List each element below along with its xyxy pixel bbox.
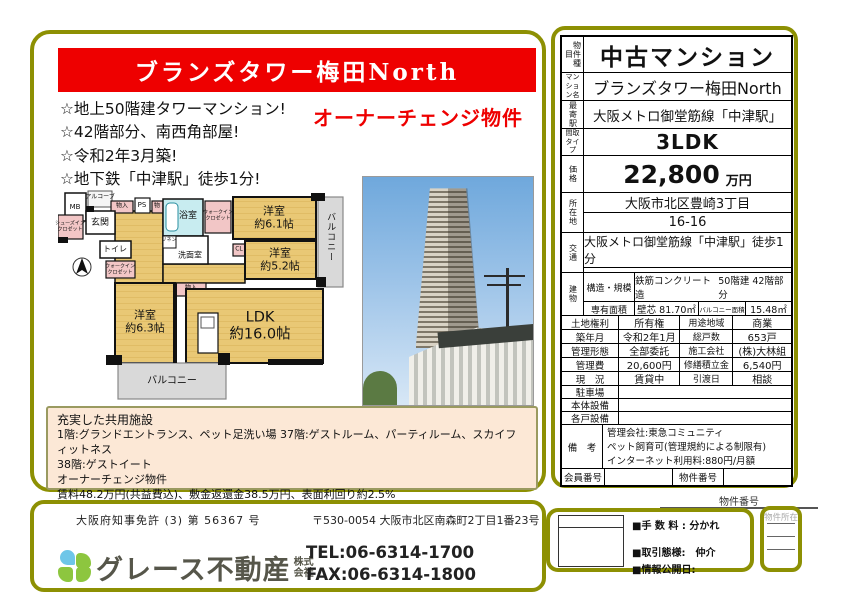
- facilities-line: 38階:ゲストイート: [57, 458, 527, 473]
- property-location-label: 物件所在: [764, 510, 798, 523]
- spec-row-station: 最寄駅 大阪メトロ御堂筋線「中津駅」: [562, 100, 791, 128]
- spec-table: 物件種目 中古マンション マンション名 ブランズタワー梅田North 最寄駅 大…: [560, 35, 793, 487]
- fp-label-bath: 浴室: [179, 211, 197, 221]
- highlight-item: ☆42階部分、南西角部屋!: [60, 121, 286, 144]
- license-number: 大阪府知事免許 (3) 第 56367 号: [76, 512, 261, 528]
- note-line: 管理会社:東急コミュニティ: [607, 427, 787, 441]
- spec-row-address: 所在地 大阪市北区豊崎3丁目 16-16: [562, 192, 791, 232]
- note-line: ペット飼育可(管理規約による制限有): [607, 441, 787, 455]
- spec-row-price: 価格 22,800 万円: [562, 155, 791, 192]
- fp-label-alcove: アルコーブ: [85, 195, 114, 202]
- fp-label-bedroom3: 洋室 約6.3帖: [125, 309, 165, 334]
- spec-row-notes: 備 考 管理会社:東急コミュニティ ペット飼育可(管理規約による制限有) インタ…: [562, 424, 791, 468]
- price-value: 22,800 万円: [584, 156, 791, 192]
- fp-label-storage-small: 物: [154, 204, 160, 211]
- spec-row-access: 交通 大阪メトロ御堂筋線「中津駅」徒歩1分: [562, 232, 791, 272]
- bathtub-icon: [166, 203, 178, 231]
- building-photo: [362, 176, 534, 406]
- fp-label-linen: リネン: [161, 238, 176, 244]
- deal-info-box: ■手 数 料 : 分かれ ■取引態様: 仲介 ■情報公開日:: [546, 508, 754, 572]
- fp-label-wic-left: ウォークイン クロゼット: [105, 264, 135, 276]
- commission-line: ■手 数 料 : 分かれ: [632, 517, 719, 532]
- owner-change-note: オーナーチェンジ物件: [296, 102, 540, 131]
- main-content-box: ブランズタワー梅田North ☆地上50階建タワーマンション! ☆42階部分、南…: [30, 30, 546, 492]
- fp-label-washroom: 洗面室: [178, 250, 202, 259]
- floors: 50階建 42階部分: [718, 273, 791, 301]
- floor-plan: MB アルコーブ 物入 PS 物 浴室 ウォークイン クロゼット 洋室 約6.1…: [58, 189, 360, 423]
- tree: [363, 371, 397, 405]
- access-line-empty: [584, 267, 791, 272]
- property-title-banner: ブランズタワー梅田North: [58, 48, 536, 92]
- fp-label-mb: MB: [70, 203, 81, 211]
- nearest-station: 大阪メトロ御堂筋線「中津駅」: [584, 101, 791, 128]
- exclusive-area: 壁芯 81.70㎡: [635, 302, 699, 315]
- structure: 鉄筋コンクリート造: [635, 273, 718, 301]
- facilities-title: 充実した共用施設: [57, 412, 527, 428]
- fp-label-toilet: トイレ: [103, 244, 127, 253]
- company-tel: TEL:06-6314-1700: [306, 542, 476, 564]
- highlight-item: ☆令和2年3月築!: [60, 145, 286, 168]
- fp-label-entrance: 玄関: [91, 218, 109, 228]
- flyer-page: ブランズタワー梅田North ☆地上50階建タワーマンション! ☆42階部分、南…: [0, 0, 842, 595]
- spec-row-building: 建物 構造・規模 鉄筋コンクリート造 50階建 42階部分 専有面積 壁芯 81…: [562, 272, 791, 315]
- fp-label-shoes-closet: シューズイン クロゼット: [55, 221, 85, 233]
- company-name: グレース不動産 株式 会社: [96, 548, 314, 587]
- spec-row-management: 管理形態 全部委託 施工会社 (株)大林組: [562, 343, 791, 357]
- spec-row-status: 現 況 賃貸中 引渡日 相談: [562, 371, 791, 385]
- highlight-item: ☆地下鉄「中津駅」徒歩1分!: [60, 168, 286, 191]
- access-line: 大阪メトロ御堂筋線「中津駅」徒歩1分: [584, 233, 791, 267]
- company-logo-icon: [58, 550, 91, 584]
- spec-row-parking: 駐車場: [562, 385, 791, 398]
- transaction-type-line: ■取引態様: 仲介: [632, 544, 719, 559]
- floor-plan-type: 3LDK: [584, 129, 791, 155]
- fp-label-balcony-bottom: バルコニー: [147, 375, 197, 387]
- address-line2: 16-16: [584, 212, 791, 232]
- fp-label-wic-top: ウォークイン クロゼット: [203, 210, 233, 222]
- highlights-list: ☆地上50階建タワーマンション! ☆42階部分、南西角部屋! ☆令和2年3月築!…: [60, 98, 286, 191]
- spec-row-built: 築年月 令和2年1月 総戸数 653戸: [562, 329, 791, 343]
- balcony-area: 15.48㎡: [746, 302, 791, 315]
- spec-row-type: 物件種目 中古マンション: [562, 37, 791, 72]
- spec-row-member: 会員番号 物件番号: [562, 468, 791, 485]
- facilities-line: オーナーチェンジ物件: [57, 473, 527, 488]
- spec-row-main-equip: 本体設備: [562, 398, 791, 411]
- publication-date-line: ■情報公開日:: [632, 561, 719, 576]
- company-address: 〒530-0054 大阪市北区南森町2丁目1番23号: [312, 512, 539, 528]
- mansion-name: ブランズタワー梅田North: [584, 73, 791, 100]
- stamp-area: [558, 515, 624, 567]
- fp-label-storage: 物入: [116, 204, 128, 211]
- company-box: 大阪府知事免許 (3) 第 56367 号 〒530-0054 大阪市北区南森町…: [30, 500, 546, 592]
- facilities-line: 1階:グランドエントランス、ペット足洗い場 37階:ゲストルーム、パーティルーム…: [57, 428, 527, 458]
- fp-label-ldk: LDK 約16.0帖: [229, 309, 290, 342]
- fp-label-bedroom2: 洋室 約5.2帖: [260, 247, 300, 272]
- fp-label-bedroom1: 洋室 約6.1帖: [254, 205, 294, 230]
- spec-row-plan: 間取タイプ 3LDK: [562, 128, 791, 155]
- spec-row-land: 土地権利 所有権 用途地域 商業: [562, 315, 791, 329]
- fp-label-storage-center: 物入: [185, 286, 197, 293]
- spec-row-name: マンション名 ブランズタワー梅田North: [562, 72, 791, 100]
- spec-row-unit-equip: 各戸設備: [562, 411, 791, 424]
- company-fax: FAX:06-6314-1800: [306, 564, 476, 586]
- fp-label-ps: PS: [138, 201, 147, 209]
- note-line: インターネット利用料:880円/月額: [607, 455, 787, 469]
- spec-table-box: 物件種目 中古マンション マンション名 ブランズタワー梅田North 最寄駅 大…: [551, 26, 798, 488]
- fp-label-cl: CL: [235, 247, 243, 254]
- spec-row-fees: 管理費 20,600円 修繕積立金 6,540円: [562, 357, 791, 371]
- fp-label-balcony-right: バルコニー: [325, 212, 335, 262]
- property-location-box: 物件所在: [760, 506, 802, 572]
- highlight-item: ☆地上50階建タワーマンション!: [60, 98, 286, 121]
- property-title: ブランズタワー梅田North: [135, 53, 459, 87]
- property-type: 中古マンション: [584, 37, 791, 72]
- address-line1: 大阪市北区豊崎3丁目: [584, 193, 791, 212]
- facilities-box: 充実した共用施設 1階:グランドエントランス、ペット足洗い場 37階:ゲストルー…: [46, 406, 538, 490]
